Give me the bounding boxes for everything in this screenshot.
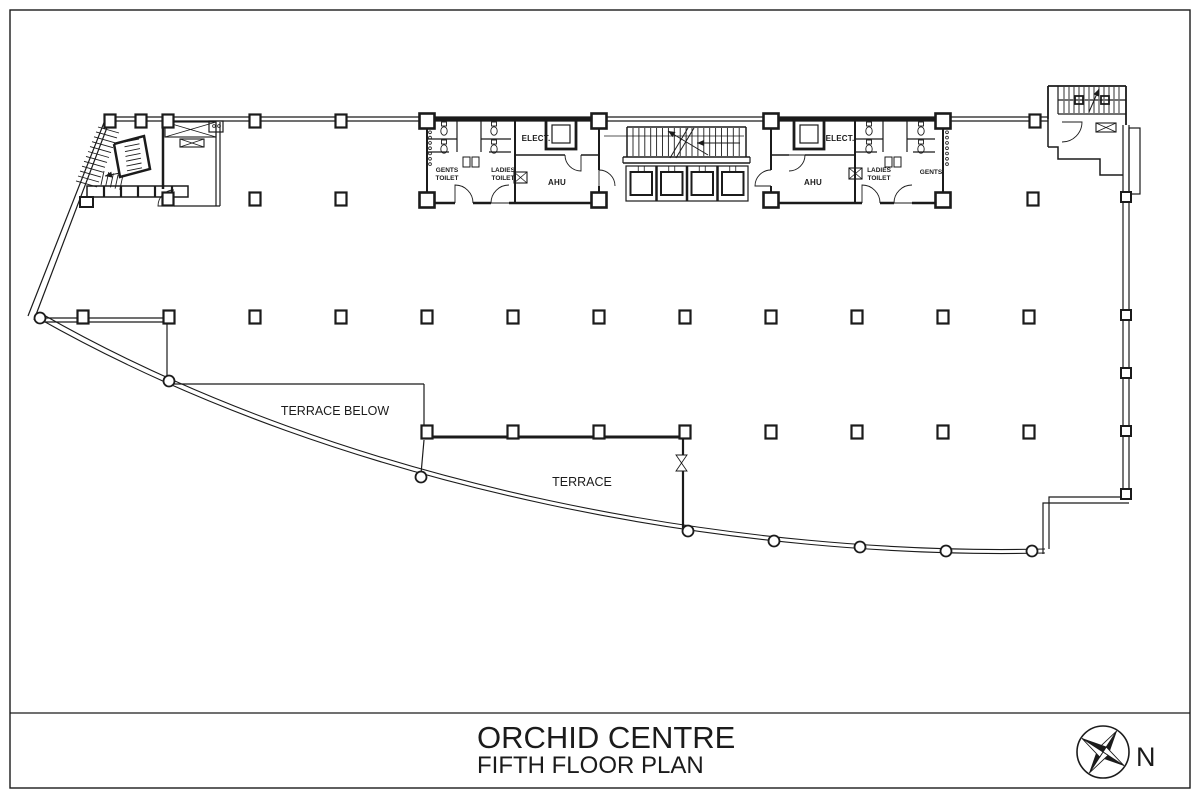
elevator-car	[722, 166, 744, 195]
stair-treads	[76, 87, 1119, 190]
label-ladies-toilet-left-2: TOILET	[492, 175, 515, 182]
label-gents-toilet-left-2: TOILET	[436, 175, 459, 182]
sheet-title: ORCHID CENTRE	[477, 720, 735, 755]
curved-facade-wall	[38, 314, 1045, 554]
label-gents-right: GENTS	[920, 169, 943, 176]
louvre-ticks	[213, 125, 949, 166]
north-compass-icon	[1077, 726, 1129, 778]
label-elect-right: ELECT.	[826, 134, 855, 143]
label-terrace-below: TERRACE BELOW	[281, 404, 390, 418]
columns-square	[78, 115, 1041, 439]
label-ladies-toilet-right-2: TOILET	[868, 175, 891, 182]
plan-details	[80, 96, 1140, 207]
drawing-sheet: GENTS TOILET LADIES TOILET ELECT. AHU EL…	[0, 0, 1200, 799]
label-ahu-left: AHU	[548, 178, 566, 187]
north-label: N	[1136, 742, 1156, 772]
label-gents-toilet-left-1: GENTS	[436, 167, 459, 174]
elevator-car	[631, 166, 653, 195]
stair-direction-arrows	[105, 89, 1099, 178]
columns-round	[35, 313, 1038, 557]
floor-plan-canvas: GENTS TOILET LADIES TOILET ELECT. AHU EL…	[0, 0, 1200, 799]
duct-shaft-boxes	[165, 122, 1116, 183]
double-door-symbol	[676, 455, 687, 471]
floor-plan-geometry	[10, 10, 1190, 788]
sheet-subtitle: FIFTH FLOOR PLAN	[477, 752, 704, 779]
elevator-bank	[626, 166, 748, 201]
label-ladies-toilet-left-1: LADIES	[491, 167, 516, 174]
label-ahu-right: AHU	[804, 178, 822, 187]
label-ladies-toilet-right-1: LADIES	[867, 167, 892, 174]
label-elect-left: ELECT.	[522, 134, 551, 143]
elevator-car	[692, 166, 714, 195]
label-terrace: TERRACE	[552, 475, 612, 489]
elevator-car	[661, 166, 683, 195]
